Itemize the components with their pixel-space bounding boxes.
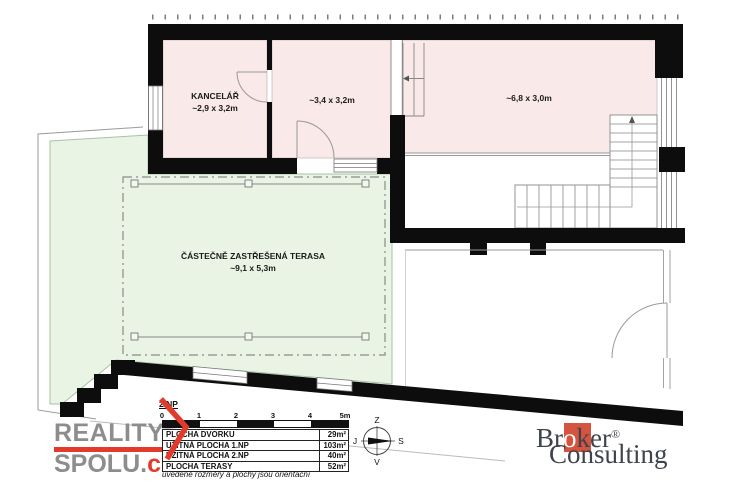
north-arrow-icon (368, 438, 393, 445)
legend-table: PLOCHA DVORKU 29m² UŽITNÁ PLOCHA 1.NP 10… (162, 429, 349, 472)
logo-reality-spolu: REALITY SPOLU.cz (54, 422, 173, 476)
logo-reality-line2: SPOLU. (54, 450, 147, 478)
window-left-wall (149, 86, 163, 130)
scale-tick-0: 0 (150, 411, 174, 420)
legend-value: 103m² (319, 441, 348, 451)
compass-letter-bottom: V (374, 457, 380, 467)
logo-reality-line1: REALITY (54, 422, 173, 445)
scale-segment (200, 421, 237, 427)
divider-wall (267, 40, 272, 70)
divider-wall (267, 102, 272, 158)
scale-segment (163, 421, 200, 427)
label-terrace: ČÁSTEČNĚ ZASTŘEŠENÁ TERASA (181, 250, 325, 261)
scale-segment (274, 421, 311, 427)
right-corner-block (655, 40, 683, 78)
window-right-wall-lower (662, 172, 677, 228)
label-middle-dims: ~3,4 x 3,2m (309, 95, 355, 105)
floor-label: 2.NP (159, 399, 178, 409)
scale-segment (237, 421, 274, 427)
window-bottom-wall (334, 159, 377, 172)
table-row: UŽITNÁ PLOCHA 2.NP 40m² (163, 450, 348, 461)
legend-label: PLOCHA DVORKU (163, 430, 319, 440)
thin-divider (391, 40, 403, 115)
label-kancelar: KANCELÁŘ (191, 90, 239, 101)
logo-broker-consulting: Broker® Consulting (536, 419, 706, 477)
scale-tick-2: 2 (224, 411, 248, 420)
scale-tick-1: 1 (187, 411, 211, 420)
compass-letter-left: J (353, 436, 357, 446)
wall-stub (470, 243, 487, 255)
center-column (390, 115, 405, 243)
table-row: PLOCHA DVORKU 29m² (163, 430, 348, 440)
legend-value: 40m² (319, 451, 348, 461)
broker-line2: Consulting (549, 439, 668, 469)
door-courtyard (612, 303, 667, 358)
legend-label: UŽITNÁ PLOCHA 2.NP (163, 451, 319, 461)
scale-segment (311, 421, 348, 427)
legend-note: uvedené rozměry a plochy jsou orientační (162, 470, 310, 479)
courtyard-room-outline (405, 250, 670, 389)
legend-label: UŽITNÁ PLOCHA 1.NP (163, 441, 319, 451)
label-terrace-dims: ~9,1 x 5,3m (230, 263, 276, 273)
label-right-dims: ~6,8 x 3,0m (506, 93, 552, 103)
legend-value: 52m² (319, 462, 348, 472)
bottom-wall-left (148, 158, 297, 174)
right-wall-block (659, 147, 685, 172)
legend-value: 29m² (319, 430, 348, 440)
scale-tick-3: 3 (261, 411, 285, 420)
bottom-wall-right (390, 228, 685, 243)
compass: Z S V J (351, 414, 407, 470)
top-wall (148, 24, 683, 40)
scale-bar (162, 420, 349, 428)
table-row: UŽITNÁ PLOCHA 1.NP 103m² (163, 440, 348, 451)
compass-letter-right: S (398, 436, 404, 446)
scale-tick-4: 4 (298, 411, 322, 420)
wall-stub (530, 243, 546, 255)
window-right-wall-upper (662, 78, 677, 147)
courtyard-green-area (50, 135, 392, 404)
compass-letter-top: Z (374, 415, 379, 425)
label-kancelar-dims: ~2,9 x 3,2m (192, 103, 238, 113)
